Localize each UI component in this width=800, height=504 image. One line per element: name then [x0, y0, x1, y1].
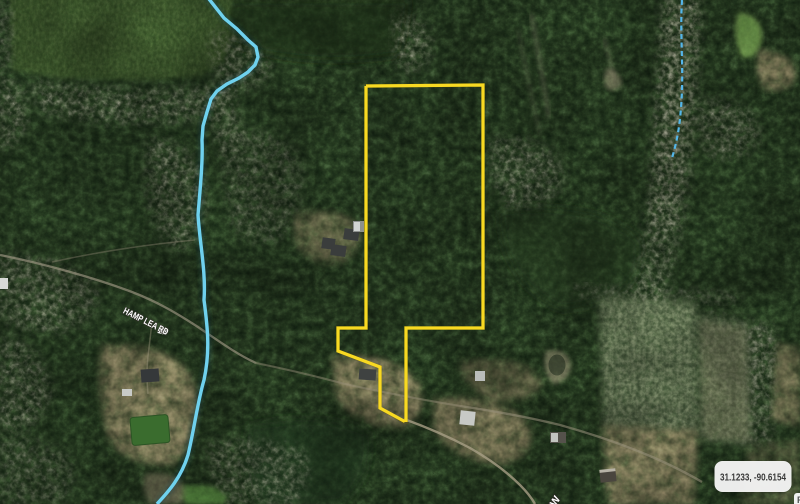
svg-text:31.1233, -90.6154: 31.1233, -90.6154 — [720, 473, 786, 484]
